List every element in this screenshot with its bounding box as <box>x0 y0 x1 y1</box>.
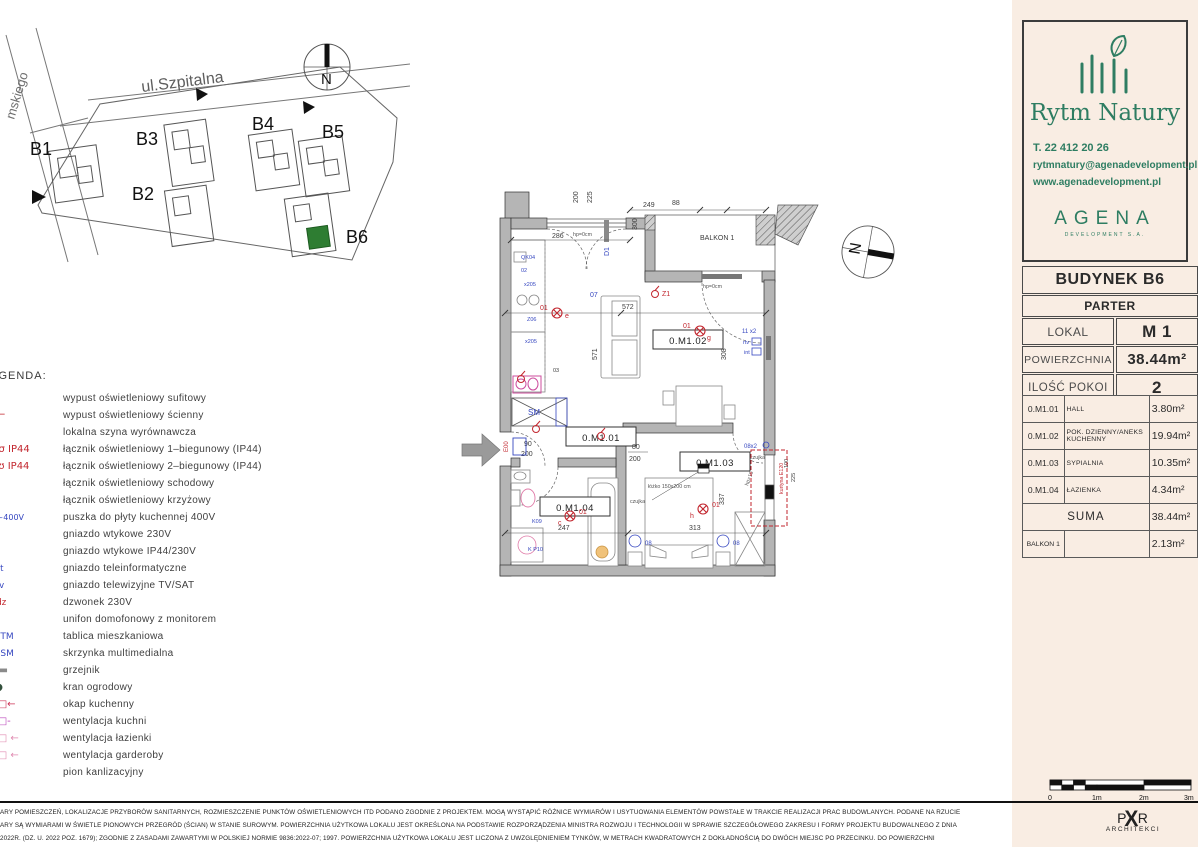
room-code: 0.M1.02 <box>1023 423 1065 450</box>
site-north-label: N <box>321 71 332 88</box>
kitchen-circuit-labels: QK04 02 x205 Z06 x205 03 <box>521 255 559 374</box>
building-b3 <box>164 119 214 186</box>
switch-2pole-icon: ʊ ʊ IP44 <box>0 461 63 472</box>
site-north-compass: N <box>304 44 350 90</box>
note-kurtyna: kurtyna E120 <box>779 463 785 494</box>
bathtub <box>588 478 618 566</box>
legend-item-label: gniazdo teleinformatyczne <box>63 563 187 574</box>
legend-item-label: lokalna szyna wyrównawcza <box>63 427 196 438</box>
wardrobe-vent-icon: ○□ ← <box>0 750 63 761</box>
legend-item: □ TM tablica mieszkaniowa <box>0 628 313 645</box>
legend-item: □ SM skrzynka multimedialna <box>0 645 313 662</box>
kitchen-hood-icon: ○□← <box>0 699 63 710</box>
room-name: HALL <box>1064 396 1149 423</box>
kitchen-vent-icon: ○□- <box>0 716 63 727</box>
legend-item-label: tablica mieszkaniowa <box>63 631 164 642</box>
legend-item-label: łącznik oświetleniowy schodowy <box>63 478 214 489</box>
architect-x: X <box>1125 805 1141 831</box>
legend-item: ○□ ← wentylacja łazienki <box>0 730 313 747</box>
brand-website[interactable]: www.agenadevelopment.pl <box>1033 174 1197 191</box>
street-top-name: ul.Szpitalna <box>140 69 224 96</box>
disclaimer-line-2: ARY SĄ WYMIARAMI W ŚWIETLE PIONOWYCH PRZ… <box>0 819 1040 832</box>
label-b4: B4 <box>252 114 274 134</box>
legend-item-label: gniazdo wtykowe 230V <box>63 529 171 540</box>
balkon-value: 2.13m² <box>1149 531 1197 558</box>
light-e-num: 01 <box>540 305 548 312</box>
footer-disclaimer: ARY POMIESZCZEŃ, LOKALIZACJE PRZYBORÓW S… <box>0 806 1040 846</box>
legend-item: ⊂ gniazdo wtykowe 230V <box>0 526 313 543</box>
brand-name: Rytm Natury <box>1024 100 1186 126</box>
table-row: 0.M1.01 HALL 3.80m² <box>1023 396 1198 423</box>
legend-item: [int gniazdo teleinformatyczne <box>0 560 313 577</box>
symbol-k09: K09 <box>532 519 542 525</box>
unit-highlight <box>307 225 331 249</box>
light-h-num: 01 <box>712 502 720 509</box>
symbol-sm: SM <box>528 408 540 417</box>
legend-item-label: unifon domofonowy z monitorem <box>63 614 216 625</box>
light-c-num: 01 <box>579 509 587 516</box>
room-code: 0.M1.03 <box>1023 450 1065 477</box>
bed <box>645 478 713 568</box>
legend-item: ⊕ pion kanlizacyjny <box>0 764 313 781</box>
legend-item: Ж łącznik oświetleniowy krzyżowy <box>0 492 313 509</box>
balkon-label: BALKON 1 <box>1023 531 1065 558</box>
intercom-icon: ⊡ <box>0 614 63 625</box>
room-area: 10.35m² <box>1149 450 1197 477</box>
legend-item-label: puszka do płyty kuchennej 400V <box>63 512 215 523</box>
dim-225b: 225 <box>791 473 797 482</box>
floor-plan: BALKON 1 <box>440 165 910 605</box>
architect-logo: PXR ARCHITEKCI <box>1098 810 1168 833</box>
room-name: POK. DZIENNY/ANEKS KUCHENNY <box>1064 423 1149 450</box>
symbol-11x2: 11 x2 <box>742 329 757 335</box>
legend-item-label: dzwonek 230V <box>63 597 132 608</box>
legend-item-label: łącznik oświetleniowy 1–biegunowy (IP44) <box>63 444 262 455</box>
light-c-letter: c <box>558 520 562 527</box>
legend-item: ⊦● kran ogrodowy <box>0 679 313 696</box>
brand-contact: T. 22 412 20 26 rytmnatury@agenadevelopm… <box>1033 140 1197 191</box>
legend-item: ⋐ gniazdo wtykowe IP44/230V <box>0 543 313 560</box>
table-row: 0.M1.03 SYPIALNIA 10.35m² <box>1023 450 1198 477</box>
street-top <box>60 64 410 126</box>
apartment-panel-icon: □ TM <box>0 632 63 642</box>
building-b4 <box>248 129 299 191</box>
radiator-icon: ▬▬ <box>0 665 63 676</box>
dining-table <box>663 386 735 426</box>
dim-571: 571 <box>592 348 599 360</box>
legend-item: ○□← okap kuchenny <box>0 696 313 713</box>
room-name: ŁAZIENKA <box>1064 477 1149 504</box>
legend-item-label: gniazdo telewizyjne TV/SAT <box>63 580 194 591</box>
balcony-wall-hatched <box>756 215 775 245</box>
street-left-name: mskiego <box>3 70 32 121</box>
suma-row: SUMA 38.44m² <box>1023 504 1198 531</box>
wall-light-icon: ∽⌐ <box>0 410 63 421</box>
legend-item: ◉dz dzwonek 230V <box>0 594 313 611</box>
multimedia-box-icon: □ SM <box>0 649 63 659</box>
room-label-living: 0.M1.02 <box>669 336 707 347</box>
symbol-e00: E00 <box>504 441 510 452</box>
legend-item: ʊ ʊ IP44 łącznik oświetleniowy 2–bieguno… <box>0 458 313 475</box>
symbol-03: 03 <box>553 368 559 374</box>
room-area: 3.80m² <box>1149 396 1197 423</box>
kitchen-counter <box>511 240 545 392</box>
room-area: 4.34m² <box>1149 477 1197 504</box>
plan-north-label: N <box>845 241 864 255</box>
dim-225: 225 <box>587 191 594 203</box>
label-b5: B5 <box>322 122 344 142</box>
label-b3: B3 <box>136 129 158 149</box>
legend-item: ⊗ wypust oświetleniowy sufitowy <box>0 390 313 407</box>
garden-tap-icon: ⊦● <box>0 682 63 693</box>
lokal-label: LOKAL <box>1022 318 1114 345</box>
room-code: 0.M1.04 <box>1023 477 1065 504</box>
legend-item: [rtv gniazdo telewizyjne TV/SAT <box>0 577 313 594</box>
switch-1pole-icon: σ σ IP44 <box>0 444 63 455</box>
label-b2: B2 <box>132 184 154 204</box>
symbol-d1: D1 <box>604 247 611 256</box>
legend-item-label: łącznik oświetleniowy 2–biegunowy (IP44) <box>63 461 262 472</box>
symbol-int: int <box>744 350 750 356</box>
sofa <box>601 296 640 378</box>
dim-entry-200: 200 <box>521 451 533 458</box>
disclaimer-line-1: ARY POMIESZCZEŃ, LOKALIZACJE PRZYBORÓW S… <box>0 806 1040 819</box>
building-b5 <box>298 135 349 197</box>
symbol-qk04: QK04 <box>521 255 535 261</box>
brand-phone: T. 22 412 20 26 <box>1033 140 1197 157</box>
legend-item-label: wentylacja kuchni <box>63 716 146 727</box>
dim-308: 308 <box>721 348 728 360</box>
floorplan-sheet: mskiego ul.Szpitalna <box>0 0 1198 847</box>
legend: LEGENDA: ⊗ wypust oświetleniowy sufitowy… <box>0 370 313 781</box>
table-row: 0.M1.02 POK. DZIENNY/ANEKS KUCHENNY 19.9… <box>1023 423 1198 450</box>
suma-label: SUMA <box>1023 504 1150 531</box>
dim-door-200: 200 <box>629 456 641 463</box>
dim-286: 286 <box>552 233 564 240</box>
legend-item-label: wypust oświetleniowy ścienny <box>63 410 204 421</box>
symbol-z1: Z1 <box>662 291 670 298</box>
label-b6: B6 <box>346 227 368 247</box>
note-czujka-window: czujka <box>750 455 765 461</box>
symbol-z06: Z06 <box>527 317 536 323</box>
symbol-08x2: 08x2 <box>744 444 758 450</box>
room-area: 19.94m² <box>1149 423 1197 450</box>
light-g-num: 01 <box>683 323 691 330</box>
footer-divider <box>0 801 1198 803</box>
window-mullion <box>765 485 774 499</box>
sidebar: Rytm Natury T. 22 412 20 26 rytmnatury@a… <box>1012 0 1198 847</box>
north-needle <box>867 249 894 259</box>
legend-item-label: kran ogrodowy <box>63 682 133 693</box>
area-label: POWIERZCHNIA <box>1022 346 1114 373</box>
symbol-08b: 08 <box>733 541 740 547</box>
room-name: SYPIALNIA <box>1064 450 1149 477</box>
building-title: BUDYNEK B6 <box>1022 266 1198 294</box>
symbol-02: 02 <box>521 268 527 274</box>
note-czujka-bed: czujka <box>630 499 645 505</box>
wardrobe <box>735 512 765 566</box>
table-row: 0.M1.04 ŁAZIENKA 4.34m² <box>1023 477 1198 504</box>
agena-subtitle: DEVELOPMENT S.A. <box>1024 232 1186 238</box>
dim-88: 88 <box>672 200 680 207</box>
dim-entry-90: 90 <box>524 441 532 448</box>
symbol-rtv: rtv <box>743 340 749 346</box>
dim-249: 249 <box>643 202 655 209</box>
socket-ip44-icon: ⋐ <box>0 546 63 557</box>
socket-230v-icon: ⊂ <box>0 529 63 540</box>
legend-item-label: pion kanlizacyjny <box>63 767 144 778</box>
legend-item-label: okap kuchenny <box>63 699 134 710</box>
legend-item-label: gniazdo wtykowe IP44/230V <box>63 546 196 557</box>
bathroom-vent-icon: ○□ ← <box>0 733 63 744</box>
toilet <box>511 489 535 507</box>
agena-logo: AGENA DEVELOPMENT S.A. <box>1024 208 1186 238</box>
dim-door-80: 80 <box>632 444 640 451</box>
balkon-row: BALKON 1 2.13m² <box>1023 531 1198 558</box>
legend-title: LEGENDA: <box>0 370 313 382</box>
plan-north-compass: N <box>838 222 898 282</box>
legend-item-label: grzejnik <box>63 665 100 676</box>
symbol-07: 07 <box>590 292 598 299</box>
symbol-kp10: K P10 <box>528 547 543 553</box>
legend-item: ○□- wentylacja kuchni <box>0 713 313 730</box>
disclaimer-line-3: 2022R. (DZ. U. 2022 POZ. 1679); ZGODNIE … <box>0 832 1040 845</box>
dim-313: 313 <box>689 525 701 532</box>
symbol-x205a: x205 <box>524 282 536 288</box>
note-hp0-balcony: hp=0cm <box>703 284 723 290</box>
agena-name: AGENA <box>1024 208 1186 230</box>
sewage-riser-icon: ⊕ <box>0 769 63 777</box>
stair-switch-icon: ς <box>0 478 63 489</box>
balcony: BALKON 1 <box>645 205 818 271</box>
legend-item-label: wentylacja garderoby <box>63 750 164 761</box>
legend-item: ○□ ← wentylacja garderoby <box>0 747 313 764</box>
dim-337: 337 <box>719 493 726 505</box>
note-hp15: hp=15 <box>744 471 755 487</box>
tv-sat-socket-icon: [rtv <box>0 581 63 591</box>
cooker-box-icon: □~400V <box>0 513 63 522</box>
legend-item-label: wentylacja łazienki <box>63 733 152 744</box>
legend-item: ς łącznik oświetleniowy schodowy <box>0 475 313 492</box>
legend-item: ▬▬ grzejnik <box>0 662 313 679</box>
site-plan: mskiego ul.Szpitalna <box>0 20 410 285</box>
label-b1: B1 <box>30 139 52 159</box>
rooms-table: 0.M1.01 HALL 3.80m² 0.M1.02 POK. DZIENNY… <box>1022 395 1198 558</box>
legend-item: ⊕ lokalna szyna wyrównawcza <box>0 424 313 441</box>
balcony-label: BALKON 1 <box>700 235 734 242</box>
dim-300: 300 <box>632 218 639 230</box>
area-value: 38.44m² <box>1116 346 1198 373</box>
room-code: 0.M1.01 <box>1023 396 1065 423</box>
windows <box>547 219 774 520</box>
light-e-letter: e <box>565 313 569 320</box>
dim-572: 572 <box>622 304 634 311</box>
light-g-letter: g <box>707 335 711 342</box>
legend-item: ⊡ unifon domofonowy z monitorem <box>0 611 313 628</box>
rytm-natury-logo-icon <box>1070 34 1140 98</box>
ceiling-light-icon: ⊗ <box>0 393 63 404</box>
cross-switch-icon: Ж <box>0 495 63 506</box>
symbol-08a: 08 <box>645 541 652 547</box>
lokal-value: M 1 <box>1116 318 1198 345</box>
data-socket-icon: [int <box>0 564 63 574</box>
balkon-empty <box>1064 531 1149 558</box>
light-h-letter: h <box>690 513 694 520</box>
room-label-hall: 0.M1.01 <box>582 433 620 444</box>
north-needle <box>325 44 330 67</box>
legend-item-label: wypust oświetleniowy sufitowy <box>63 393 206 404</box>
bathroom-sink <box>511 470 530 483</box>
note-hp0-kitchen: hp=0cm <box>573 232 593 238</box>
legend-item: ∽⌐ wypust oświetleniowy ścienny <box>0 407 313 424</box>
entry-arrow <box>462 434 500 466</box>
suma-value: 38.44m² <box>1149 504 1197 531</box>
legend-item: □~400V puszka do płyty kuchennej 400V <box>0 509 313 526</box>
dim-200: 200 <box>573 191 580 203</box>
legend-item-label: łącznik oświetleniowy krzyżowy <box>63 495 211 506</box>
doorbell-icon: ◉dz <box>0 598 63 608</box>
floor-title: PARTER <box>1022 295 1198 317</box>
building-b6 <box>284 193 336 257</box>
brand-panel: Rytm Natury T. 22 412 20 26 rytmnatury@a… <box>1022 20 1188 262</box>
room-label-bathroom: 0.M1.04 <box>556 503 594 514</box>
scale-bar: 0 1m 2m 3m <box>1048 778 1198 802</box>
legend-item-label: skrzynka multimedialna <box>63 648 174 659</box>
equipotential-bar-icon: ⊕ <box>0 427 63 438</box>
architect-logo-letters: PXR <box>1098 810 1168 826</box>
building-b2 <box>164 185 213 246</box>
tv-data-sockets: 11 x2 rtv int <box>742 329 761 356</box>
legend-item: σ σ IP44 łącznik oświetleniowy 1–bieguno… <box>0 441 313 458</box>
symbol-x205b: x205 <box>525 339 537 345</box>
brand-email[interactable]: rytmnatury@agenadevelopment.pl <box>1033 157 1197 174</box>
